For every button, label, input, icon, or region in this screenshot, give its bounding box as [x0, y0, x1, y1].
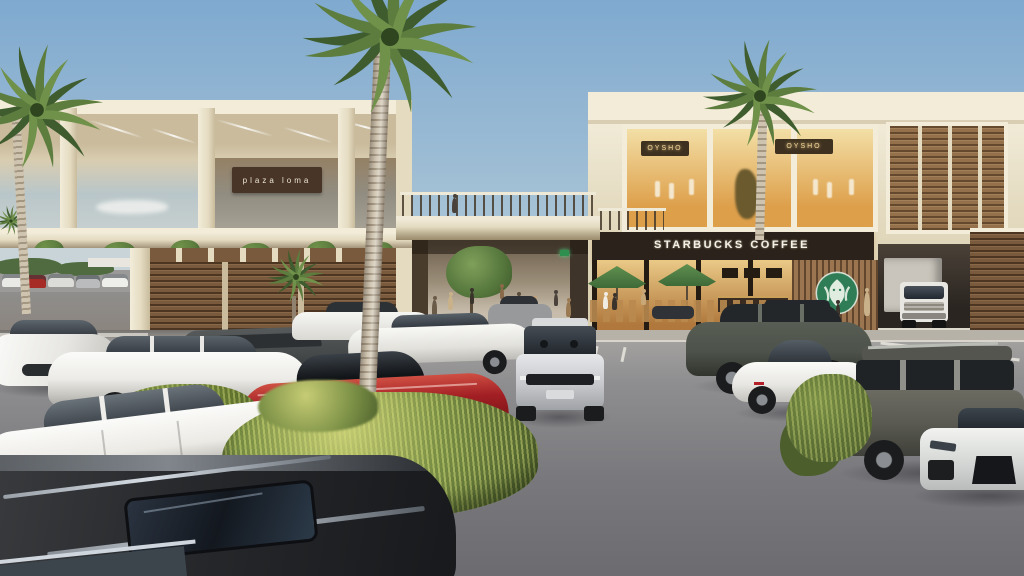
person-figure — [603, 296, 608, 309]
car-pillar — [900, 360, 906, 392]
headlight — [520, 376, 526, 380]
column-pier — [198, 108, 215, 238]
car-grille — [526, 374, 594, 385]
ceiling-light — [151, 128, 197, 145]
car-silver-suv-driving — [514, 318, 606, 424]
loading-dock — [878, 244, 970, 336]
exit-sign — [560, 250, 569, 256]
license-plate — [546, 390, 574, 399]
palm-tree-center — [280, 0, 500, 112]
mannequin — [849, 179, 854, 195]
railing-top-bar — [598, 208, 666, 211]
balcony-railing — [600, 210, 664, 230]
bridge-railing — [402, 194, 594, 216]
upper-louver-panel — [886, 122, 1008, 234]
menu-boards — [722, 268, 738, 278]
car-pillar — [954, 360, 960, 392]
scene: OYSHO OYSHO STARBUCKS COFFEE — [0, 0, 1024, 576]
mannequin — [813, 179, 818, 195]
headlight — [594, 376, 600, 380]
truck-grille — [904, 302, 944, 311]
side-intake — [928, 460, 954, 480]
truck-bumper — [902, 313, 946, 319]
driver-silhouette — [540, 340, 548, 348]
distant-buildings — [88, 258, 130, 267]
starbucks-fascia: STARBUCKS COFFEE — [592, 232, 874, 260]
mannequin — [669, 183, 674, 199]
mannequin — [655, 181, 660, 197]
person-figure — [612, 297, 617, 310]
person-figure — [566, 302, 571, 317]
right-ground-louver — [970, 228, 1024, 336]
car-glass — [856, 360, 1014, 392]
shrub — [786, 374, 872, 462]
louver-mullion — [978, 126, 982, 230]
foreground-suv-roof — [0, 455, 456, 576]
glass-reflection — [144, 492, 263, 513]
car-windshield — [524, 326, 596, 356]
red-accent — [754, 382, 764, 385]
starbucks-sign-text: STARBUCKS COFFEE — [622, 239, 842, 251]
distant-cloud — [96, 200, 168, 214]
person-figure — [470, 292, 474, 304]
distant-car — [102, 274, 128, 287]
palm-tree-right — [672, 34, 848, 158]
car-wheel — [748, 386, 776, 414]
plaza-sign-label: plaza loma — [243, 176, 312, 185]
car-wheel — [584, 406, 604, 421]
bridge-slab — [396, 216, 600, 240]
car-wheel — [864, 440, 904, 480]
louver-mullion — [918, 126, 922, 230]
louver-mullion — [948, 126, 952, 230]
distant-car — [48, 274, 74, 287]
bridge-rail-top — [400, 192, 596, 195]
person-on-bridge — [452, 198, 457, 213]
truck-windshield — [904, 286, 944, 299]
column-pier — [338, 108, 355, 238]
car-wheel — [516, 406, 536, 421]
car-grille — [972, 456, 1016, 484]
person-figure — [448, 296, 453, 310]
palm-tree-back-left — [0, 186, 56, 256]
plaza-sign: plaza loma — [232, 167, 322, 193]
ceiling-light — [216, 119, 274, 137]
grass-tuft — [258, 380, 378, 432]
person-figure — [641, 293, 646, 305]
suv-roof-body — [0, 455, 456, 576]
person-figure — [554, 294, 558, 306]
mannequin — [827, 182, 832, 198]
car-white-supercar — [920, 408, 1024, 510]
mannequin — [689, 179, 694, 195]
palm-tree-left — [0, 44, 132, 176]
passenger-silhouette — [570, 340, 578, 348]
truck-cab — [900, 282, 948, 322]
ceiling-light — [283, 126, 333, 143]
distant-car — [76, 275, 100, 288]
